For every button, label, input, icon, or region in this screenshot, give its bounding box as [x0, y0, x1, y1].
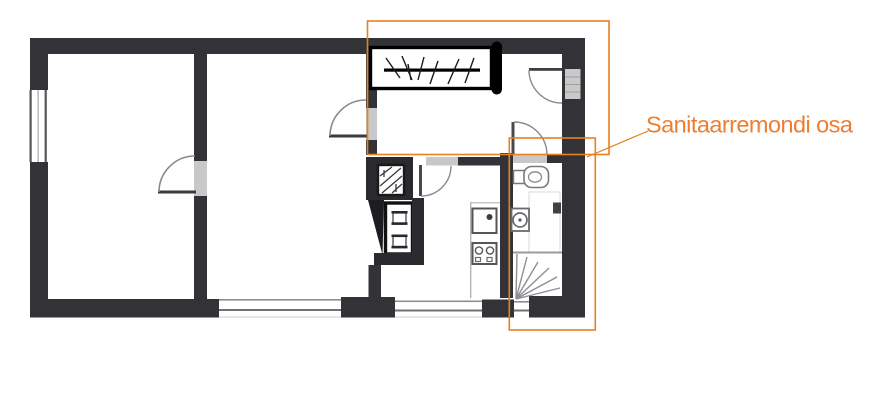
svg-text:Sanitaarremondi osa: Sanitaarremondi osa: [646, 112, 854, 138]
